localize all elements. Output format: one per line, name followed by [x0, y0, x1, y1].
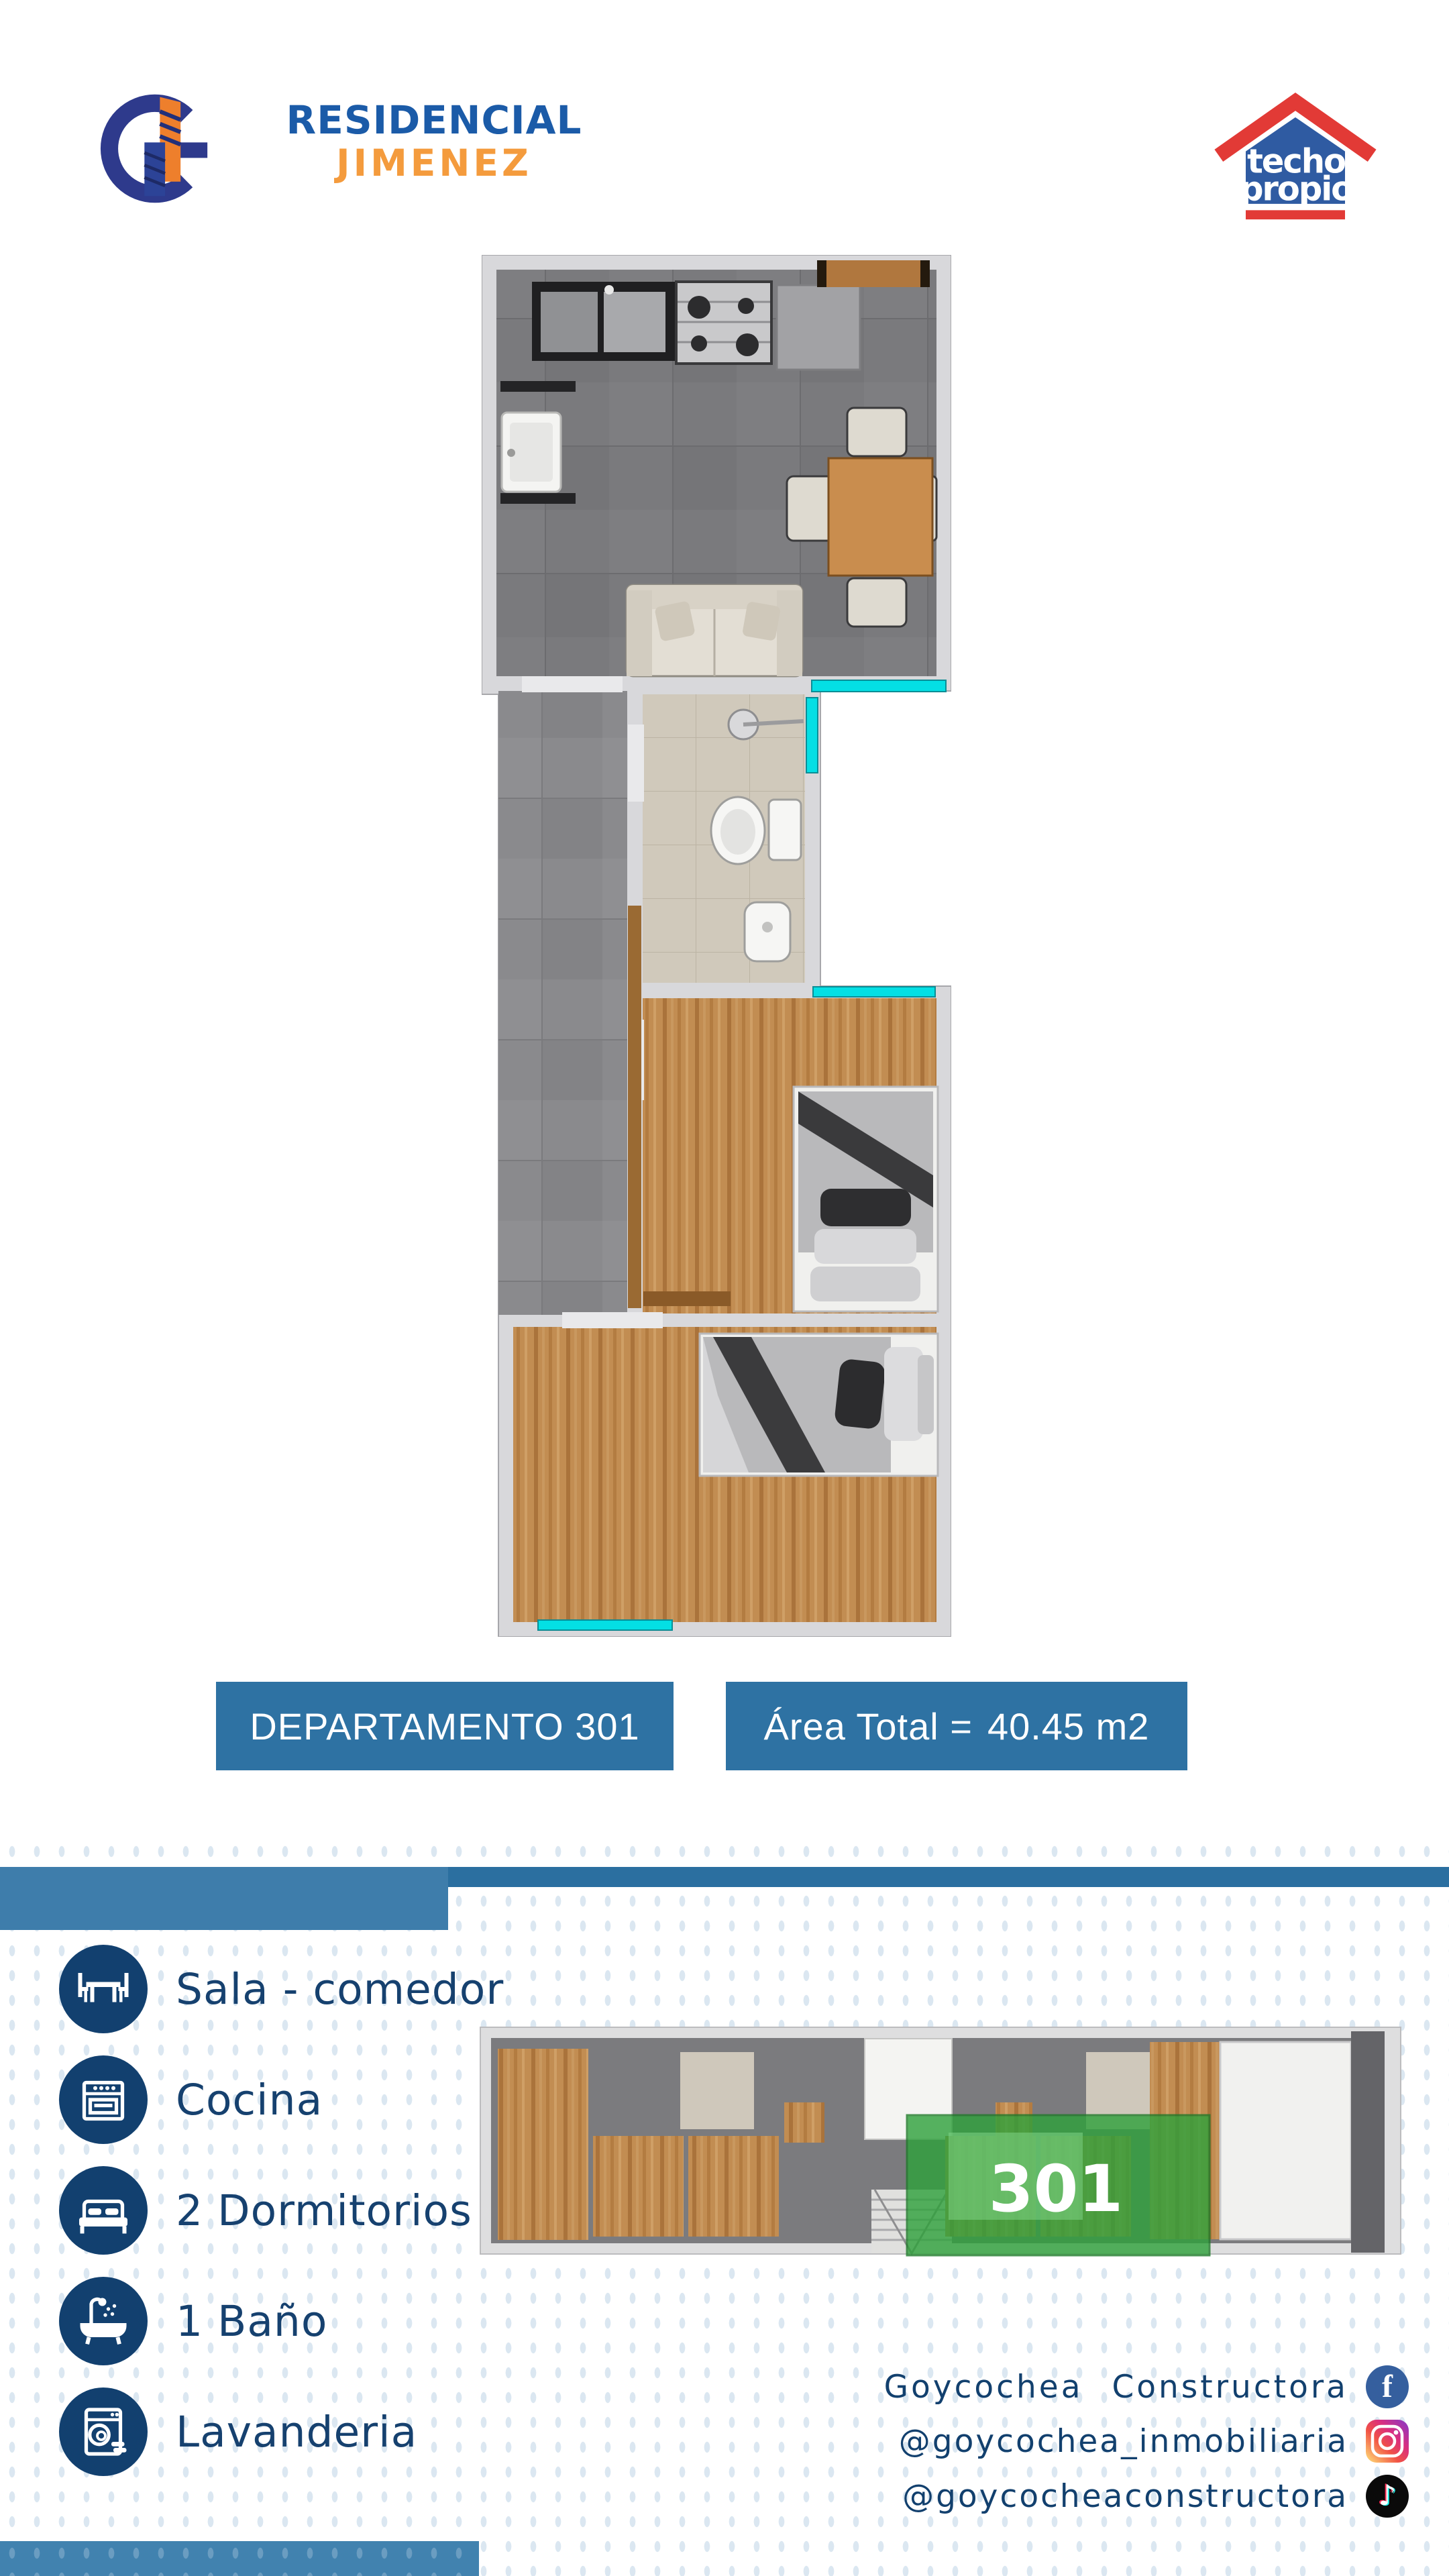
kitchen-counter	[532, 282, 676, 361]
stove	[676, 282, 771, 364]
unit-301-label: 301	[989, 2151, 1123, 2226]
feature-label: Lavanderia	[176, 2408, 417, 2457]
feature-bano: 1 Baño	[59, 2277, 327, 2365]
fridge	[777, 285, 860, 370]
feature-label: Cocina	[176, 2076, 323, 2125]
area-badge: Área Total = 40.45 m2	[726, 1682, 1187, 1770]
footer-bar	[0, 2541, 479, 2576]
tiktok-icon[interactable]	[1366, 2475, 1409, 2518]
facebook-icon[interactable]	[1366, 2365, 1409, 2408]
brand-title-line1: RESIDENCIAL	[263, 99, 605, 142]
entry-door	[817, 260, 930, 287]
flyer-page: RESIDENCIAL JIMENEZ techo propio	[0, 0, 1449, 2576]
feature-lavanderia: Lavanderia	[59, 2387, 417, 2476]
bathtub-icon	[59, 2277, 148, 2365]
social-facebook[interactable]: Goycochea Constructora	[738, 2363, 1409, 2411]
unit-301-highlight: 301	[907, 2115, 1210, 2255]
facebook-handle[interactable]: Goycochea Constructora	[884, 2369, 1348, 2406]
social-tiktok[interactable]: @goycocheaconstructora	[738, 2472, 1409, 2520]
builder-logo	[99, 80, 227, 215]
divider-block	[0, 1867, 448, 1930]
feature-label: 1 Baño	[176, 2297, 327, 2346]
feature-sala-comedor: Sala - comedor	[59, 1945, 504, 2033]
feature-label: 2 Dormitorios	[176, 2186, 472, 2235]
department-badge: DEPARTAMENTO 301	[216, 1682, 674, 1770]
feature-label: Sala - comedor	[176, 1965, 504, 2014]
dining-table-icon	[59, 1945, 148, 2033]
bed-1	[794, 1087, 938, 1311]
laundry-sink	[502, 413, 561, 492]
social-instagram[interactable]: @goycochea_inmobiliaria	[738, 2417, 1409, 2465]
tiktok-handle[interactable]: @goycocheaconstructora	[902, 2478, 1348, 2515]
instagram-icon[interactable]	[1366, 2420, 1409, 2463]
area-badge-value: 40.45 m2	[987, 1705, 1150, 1748]
wardrobe	[628, 906, 641, 1308]
feature-dormitorios: 2 Dormitorios	[59, 2166, 472, 2255]
feature-cocina: Cocina	[59, 2055, 323, 2144]
room-hallway	[498, 691, 627, 1315]
techo-propio-word-2: propio	[1240, 170, 1352, 209]
instagram-handle[interactable]: @goycochea_inmobiliaria	[899, 2423, 1348, 2460]
bath-sink	[745, 902, 790, 961]
washing-machine-icon	[59, 2387, 148, 2476]
sofa	[627, 585, 802, 676]
bath-bench	[643, 1291, 731, 1306]
techo-propio-logo: techo propio	[1206, 82, 1385, 231]
stove-icon	[59, 2055, 148, 2144]
brand-title-line2: JIMENEZ	[263, 142, 605, 184]
toilet	[711, 797, 801, 864]
bed-icon	[59, 2166, 148, 2255]
apartment-floor-plan	[482, 255, 951, 1637]
department-badge-label: DEPARTAMENTO 301	[250, 1705, 639, 1748]
building-overview-plan: 301	[479, 2022, 1413, 2259]
bed-2	[700, 1334, 938, 1476]
divider-line	[435, 1867, 1449, 1887]
brand-title: RESIDENCIAL JIMENEZ	[263, 99, 605, 184]
area-badge-prefix: Área Total =	[764, 1705, 973, 1748]
